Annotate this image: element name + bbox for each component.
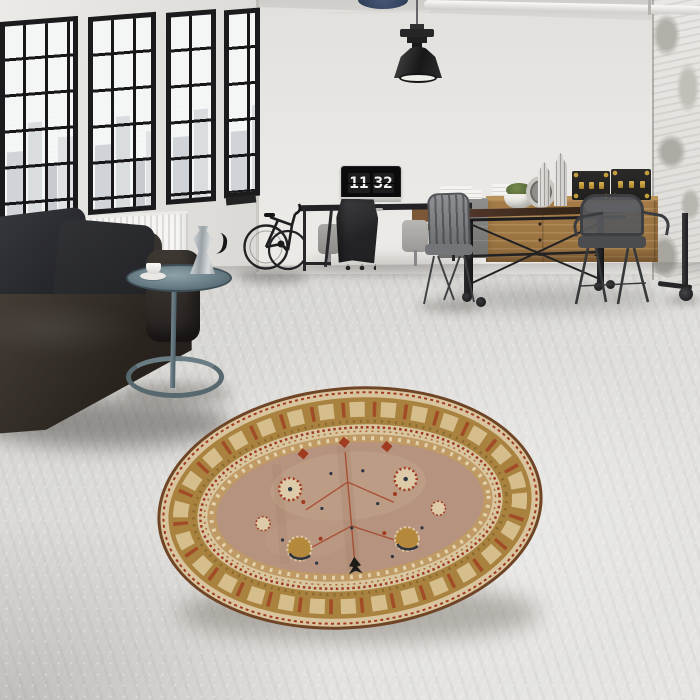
window-muntins: [228, 12, 256, 194]
clock-hours: 11: [348, 173, 369, 193]
concrete-column: [652, 0, 700, 292]
slat-chair-back: [427, 192, 471, 247]
monitor-screen: 11 32: [341, 166, 401, 199]
window-muntins: [92, 16, 152, 211]
scene: 11 32: [0, 0, 700, 700]
round-oriental-rug: [146, 370, 554, 647]
lamp-cable: [416, 0, 418, 26]
window-muntins: [4, 20, 74, 218]
window-3: [166, 9, 216, 205]
trunk-latch: [589, 182, 594, 189]
trunk-latch: [599, 182, 604, 189]
desk-crossbar: [303, 262, 331, 265]
rolling-pole: [682, 213, 688, 285]
trunk-latch: [579, 182, 584, 189]
window-1: [0, 16, 78, 222]
slat-chair-base: [420, 254, 478, 308]
chair-col-b: [414, 250, 417, 266]
window-2: [88, 12, 156, 215]
armchair-legs: [570, 246, 654, 308]
trunk-latch: [629, 181, 634, 188]
lamp-gear-housing: [400, 29, 434, 37]
valet-casters: [340, 264, 376, 270]
trunk-latch: [640, 181, 645, 188]
coat-on-stand: [335, 199, 378, 264]
bicycle: [234, 170, 304, 288]
lamp-rim: [399, 73, 437, 83]
pole-wheel: [679, 287, 693, 301]
clock-minutes: 32: [373, 173, 394, 193]
trunk-latch: [618, 181, 623, 188]
window-muntins: [170, 13, 212, 200]
pipe-bracket: [648, 0, 651, 15]
window-wall: [0, 1, 262, 232]
